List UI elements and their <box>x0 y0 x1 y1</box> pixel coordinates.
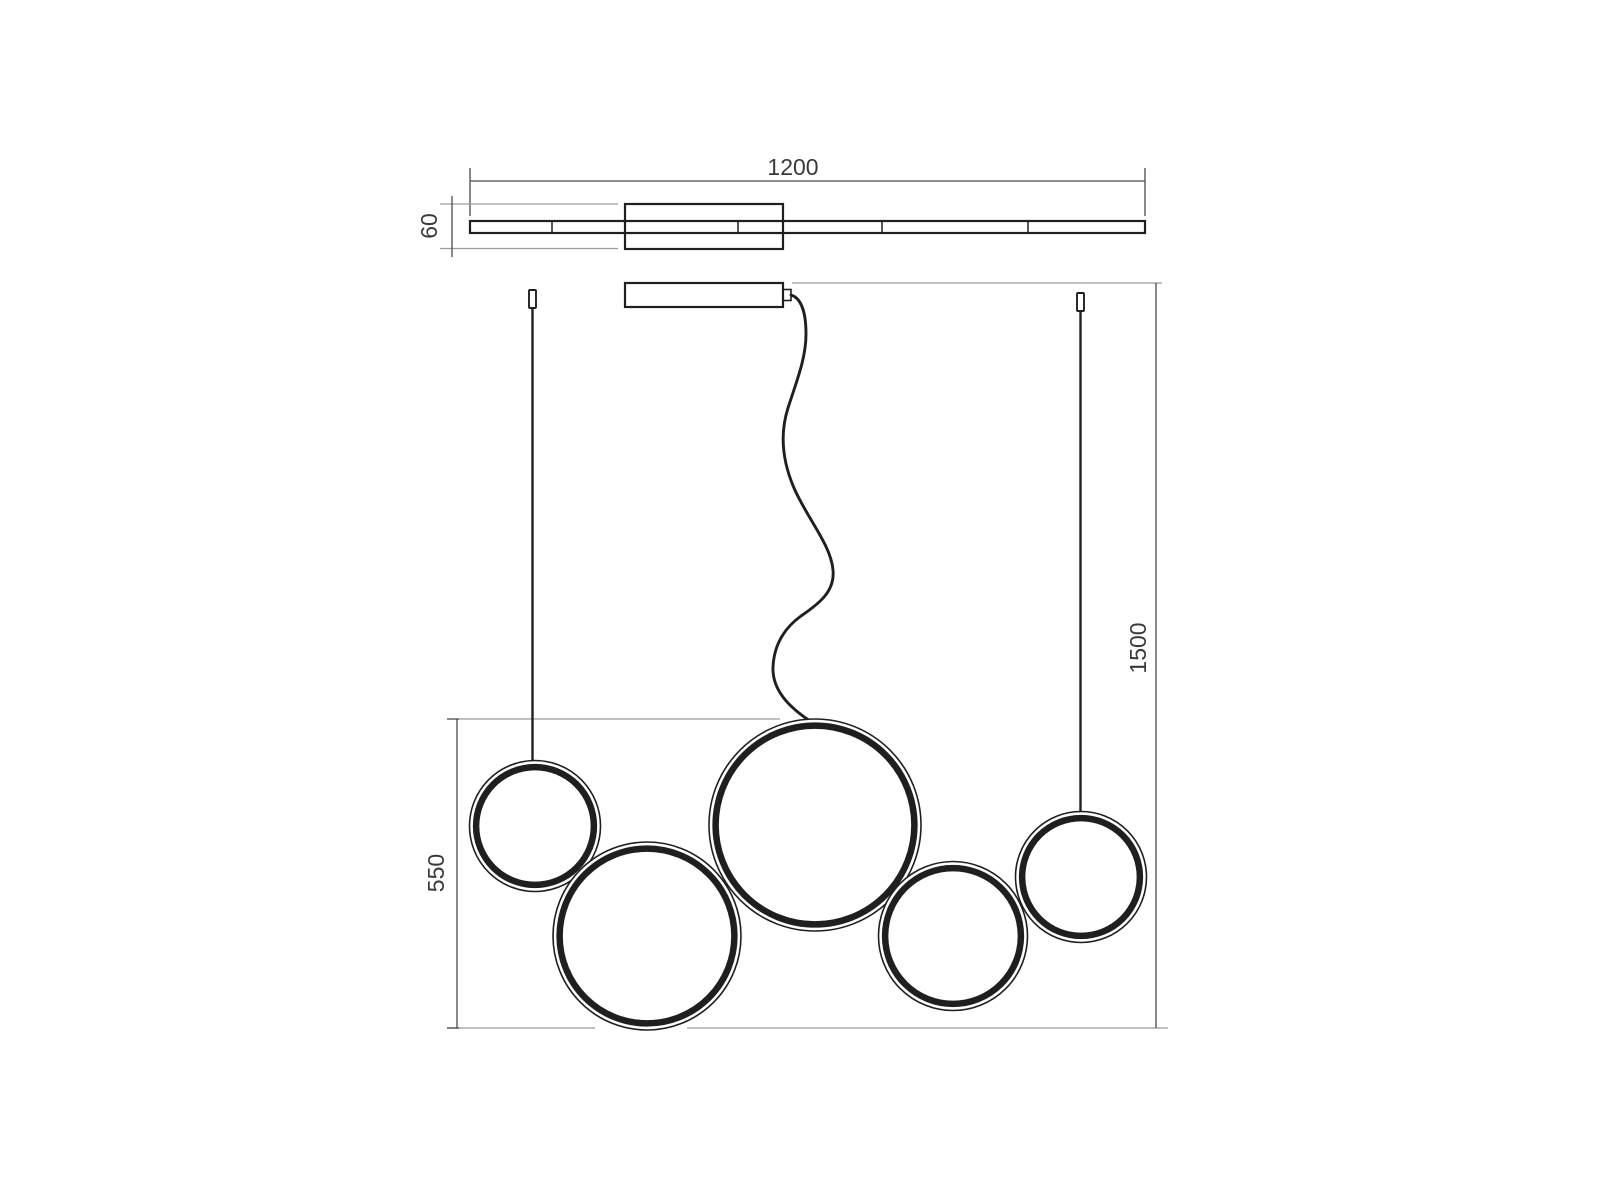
top-view: 1200 60 <box>416 154 1145 257</box>
power-cable <box>773 295 833 721</box>
canopy-front-view <box>625 283 783 307</box>
mounting-bar <box>470 221 1145 233</box>
ring-inner-circle <box>885 868 1021 1004</box>
pendant-ring-5 <box>1016 812 1147 943</box>
dim-label-width: 1200 <box>767 154 818 180</box>
pendant-ring-2 <box>553 842 741 1030</box>
ring-inner-circle <box>716 726 915 925</box>
wire-fitting-left <box>529 290 536 308</box>
ring-inner-circle <box>476 767 594 885</box>
pendant-lamp-dimension-drawing: 1200 60 550 1500 <box>0 0 1600 1200</box>
front-view: 550 1500 <box>423 283 1168 1030</box>
ring-inner-circle <box>1022 818 1140 936</box>
dim-label-cluster-height: 550 <box>423 854 449 892</box>
ring-inner-circle <box>560 849 735 1024</box>
wire-fitting-right <box>1077 293 1084 311</box>
dim-label-canopy-depth: 60 <box>416 213 442 239</box>
canopy-top-view <box>625 204 783 249</box>
drawing-canvas: 1200 60 550 1500 <box>0 0 1600 1200</box>
dim-label-suspension-drop: 1500 <box>1125 622 1151 673</box>
pendant-ring-4 <box>879 862 1028 1011</box>
